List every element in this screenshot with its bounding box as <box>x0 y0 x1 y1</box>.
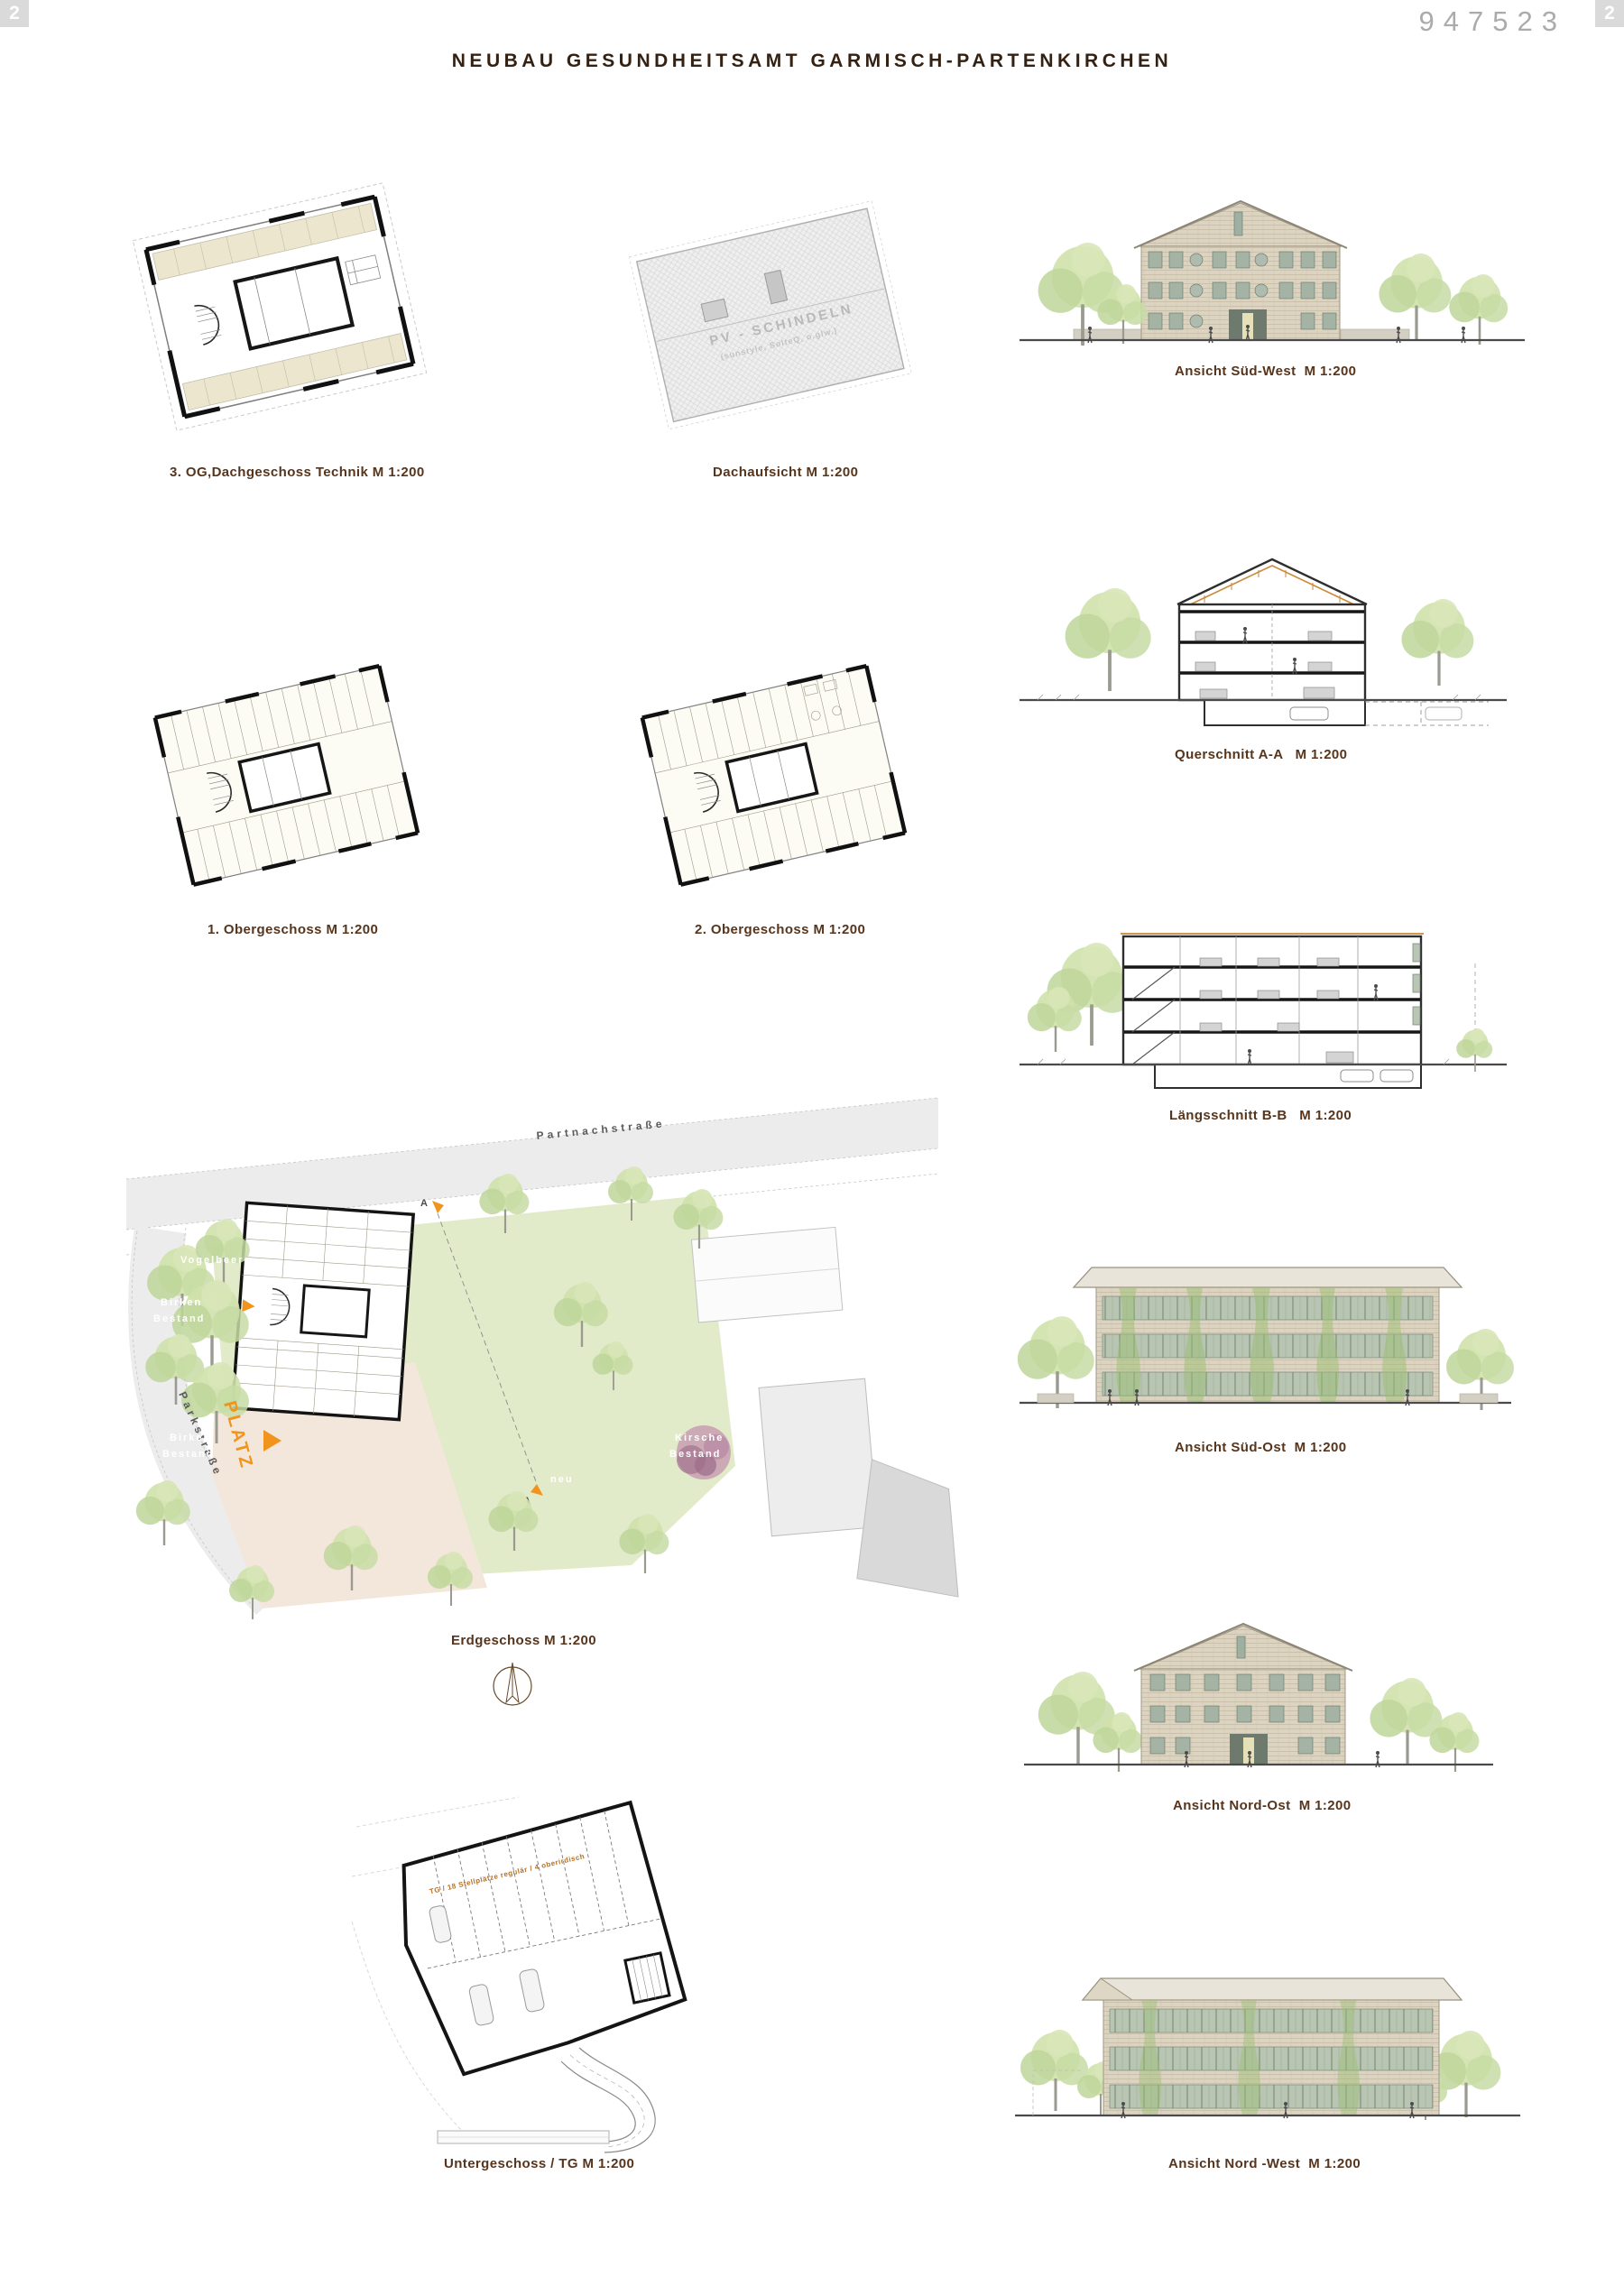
caption-elevation-sued-west: Ansicht Süd-West M 1:200 <box>1175 364 1356 379</box>
site-tree-label-birken2-line1: Birken <box>170 1433 211 1443</box>
elevation-nord-west-drawing <box>1015 1962 1520 2147</box>
roof-plan-drawing: PV - SCHINDELN (sunstyle, SolteQ, o.glw.… <box>623 185 920 451</box>
site-tree-label-birken1-line1: Birken <box>161 1297 202 1308</box>
section-bb-drawing <box>1020 909 1507 1106</box>
caption-site-plan: Erdgeschoss M 1:200 <box>451 1633 596 1648</box>
caption-plan-1og: 1. Obergeschoss M 1:200 <box>208 922 378 937</box>
presentation-board: 2 2 947523 NEUBAU GESUNDHEITSAMT GARMISC… <box>0 0 1624 2295</box>
board-title: NEUBAU GESUNDHEITSAMT GARMISCH-PARTENKIR… <box>0 51 1624 72</box>
caption-underground-plan: Untergeschoss / TG M 1:200 <box>444 2156 634 2171</box>
caption-plan-3og: 3. OG,Dachgeschoss Technik M 1:200 <box>170 465 425 480</box>
caption-section-bb: Längsschnitt B-B M 1:200 <box>1169 1108 1352 1123</box>
caption-plan-2og: 2. Obergeschoss M 1:200 <box>695 922 865 937</box>
site-section-marker-a-top: A <box>420 1198 428 1209</box>
site-tree-label-kirsche-line1: Kirsche <box>675 1433 724 1443</box>
caption-elevation-sued-ost: Ansicht Süd-Ost M 1:200 <box>1175 1440 1346 1455</box>
page-number-badge-left: 2 <box>0 0 29 27</box>
site-label-neu: neu <box>550 1474 574 1485</box>
floor-plan-3og-drawing <box>126 171 433 456</box>
site-tree-label-birken2-line2: Bestand <box>162 1449 214 1460</box>
floor-plan-2og-drawing <box>623 641 920 916</box>
elevation-sued-west-drawing <box>1020 194 1525 370</box>
caption-roof-plan: Dachaufsicht M 1:200 <box>713 465 858 480</box>
competition-entry-number: 947523 <box>1419 5 1566 38</box>
underground-plan-drawing: TG / 18 Stellplätze regulär / 4 oberirdi… <box>352 1777 740 2152</box>
caption-section-aa: Querschnitt A-A M 1:200 <box>1175 747 1347 762</box>
caption-elevation-nord-ost: Ansicht Nord-Ost M 1:200 <box>1173 1798 1352 1813</box>
site-tree-label-birken1-line2: Bestand <box>153 1313 205 1324</box>
page-number-badge-right: 2 <box>1595 0 1624 27</box>
site-tree-label-vogelbeere: Vogelbeere <box>180 1255 252 1266</box>
floor-plan-1og-drawing <box>135 641 433 916</box>
site-plan-drawing: A A <box>126 1078 938 1624</box>
caption-elevation-nord-west: Ansicht Nord -West M 1:200 <box>1168 2156 1361 2171</box>
elevation-sued-ost-drawing <box>1020 1248 1511 1437</box>
site-tree-label-kirsche-line2: Bestand <box>669 1449 721 1460</box>
section-aa-drawing <box>1020 548 1507 745</box>
north-arrow <box>485 1658 540 1714</box>
elevation-nord-ost-drawing <box>1024 1617 1493 1797</box>
